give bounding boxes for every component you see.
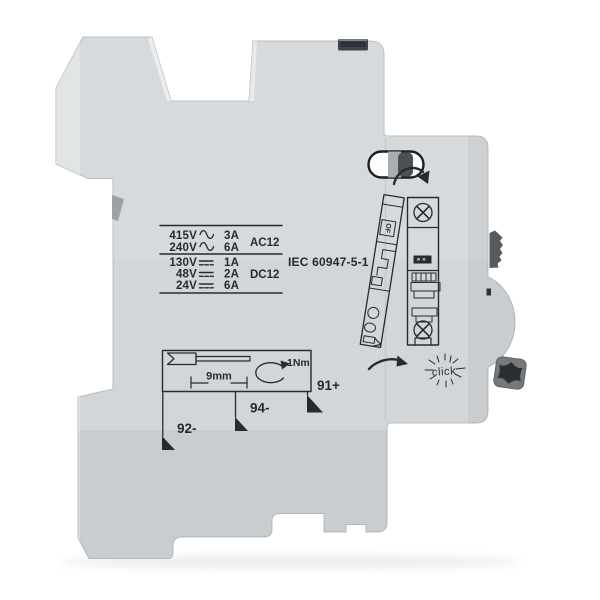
rating-current: 3A xyxy=(224,230,239,242)
strip-length-label: 9mm xyxy=(206,371,232,383)
rating-voltage: 48V xyxy=(176,269,197,281)
rating-current: 2A xyxy=(224,269,239,281)
product-photo: 415V 3A 240V 6A AC12 130V 1A 48V 2A 24V … xyxy=(0,0,600,600)
side-lever xyxy=(490,231,504,269)
device-illustration: 415V 3A 240V 6A AC12 130V 1A 48V 2A 24V … xyxy=(0,0,600,600)
top-slot xyxy=(338,39,368,51)
indicator-window xyxy=(369,152,424,178)
rating-current: 1A xyxy=(224,257,239,269)
torque-label: 1Nm xyxy=(287,357,310,369)
seam-tick xyxy=(487,289,492,296)
terminal-label-91: 91+ xyxy=(317,378,340,393)
rating-current: 6A xyxy=(224,280,239,292)
terminal-label-92: 92- xyxy=(177,421,197,436)
rating-class-ac: AC12 xyxy=(250,237,279,249)
rating-voltage: 130V xyxy=(169,257,197,269)
rating-voltage: 240V xyxy=(169,242,197,254)
rating-class-dc: DC12 xyxy=(250,269,279,281)
square-spindle xyxy=(493,356,527,390)
standard-label: IEC 60947-5-1 xyxy=(288,255,369,269)
terminal-label-94: 94- xyxy=(250,401,270,416)
rating-voltage: 415V xyxy=(169,230,197,242)
rating-current: 6A xyxy=(224,242,239,254)
click-label: click xyxy=(431,365,456,379)
rating-voltage: 24V xyxy=(176,280,197,292)
